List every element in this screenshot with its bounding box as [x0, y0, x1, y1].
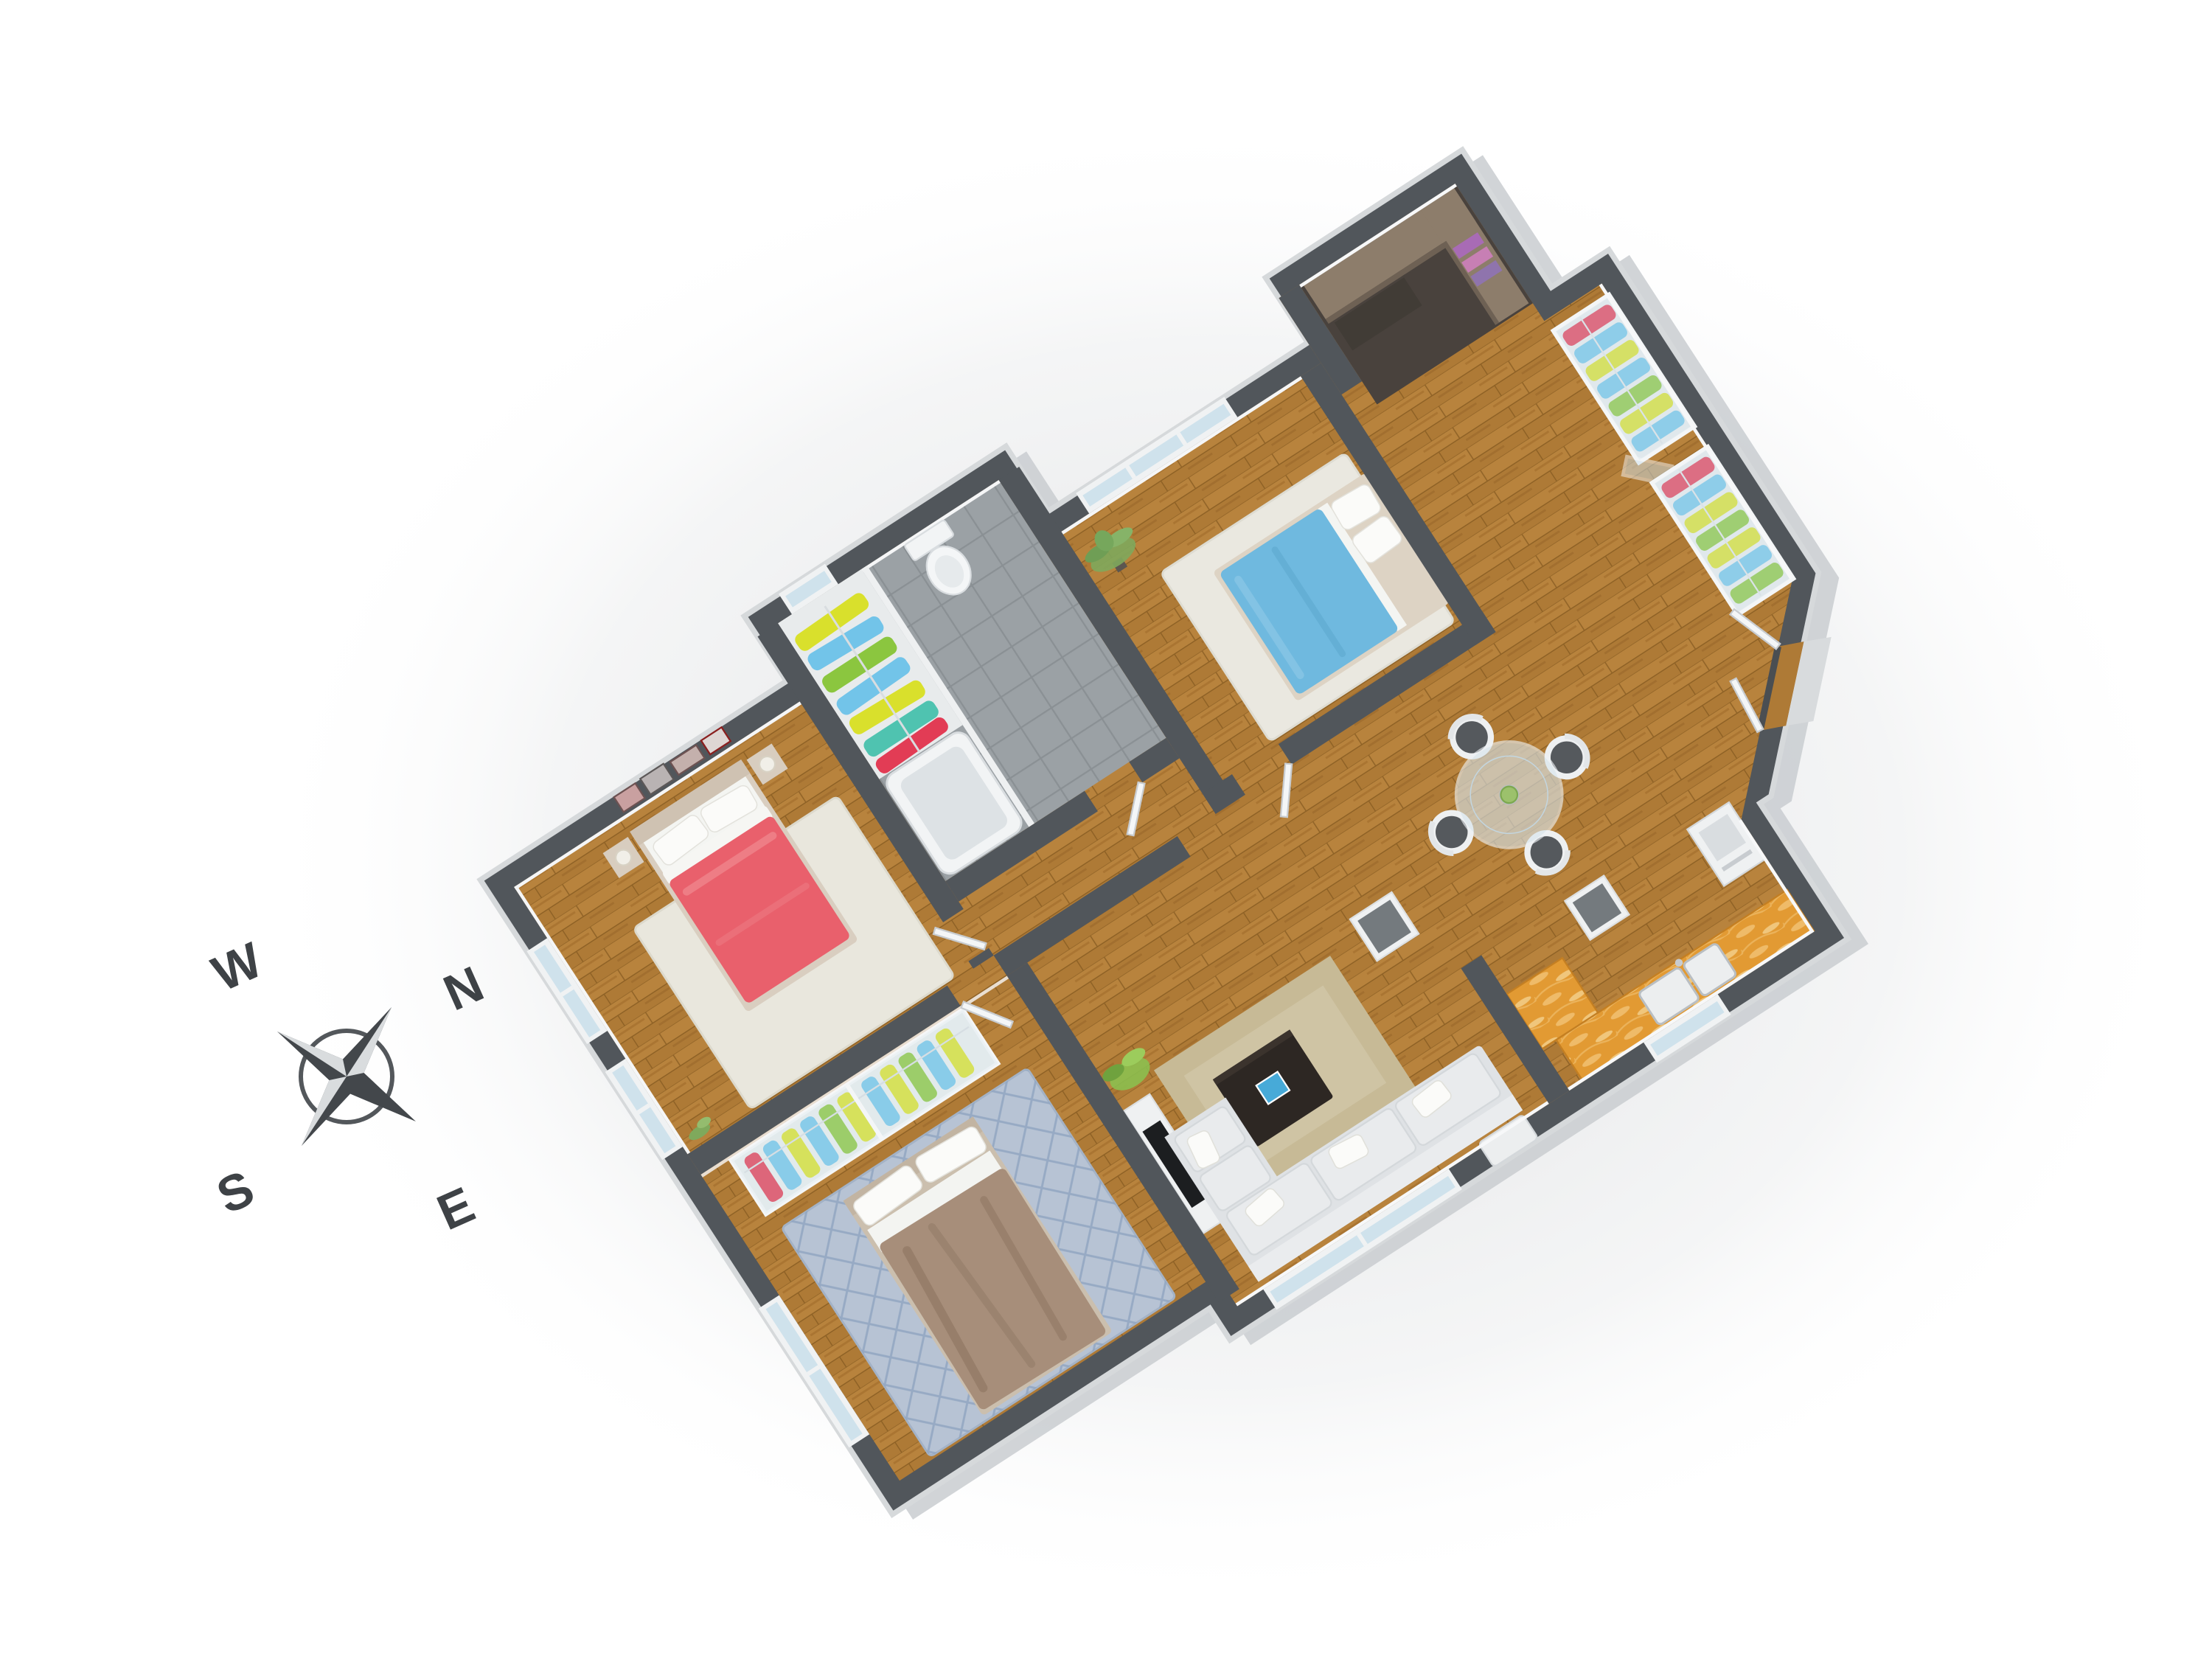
compass-label-south: S	[209, 1159, 263, 1225]
floor-plan-canvas: W N S E	[0, 0, 2212, 1659]
